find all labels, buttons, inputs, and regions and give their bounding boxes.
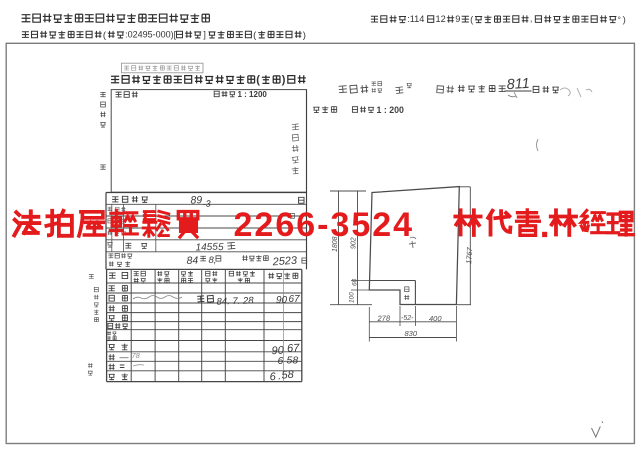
- svg-text:—: —: [120, 352, 129, 362]
- svg-text:): ): [303, 30, 306, 41]
- svg-text:1 : 200: 1 : 200: [377, 105, 404, 115]
- svg-text:°: °: [618, 16, 621, 25]
- svg-text:89: 89: [190, 194, 202, 207]
- svg-text:67: 67: [289, 294, 301, 305]
- svg-text:2266-3524: 2266-3524: [234, 206, 415, 244]
- svg-text:830: 830: [405, 329, 418, 338]
- svg-text:100: 100: [349, 292, 356, 303]
- svg-text:1767: 1767: [464, 246, 474, 264]
- svg-text:(: (: [103, 30, 107, 41]
- svg-text::02495-000)[: :02495-000)[: [125, 30, 177, 40]
- svg-text:): ): [623, 14, 626, 25]
- svg-text:6: 6: [278, 355, 284, 367]
- svg-text:278: 278: [376, 314, 391, 323]
- svg-text:1455: 1455: [195, 242, 218, 254]
- svg-text:12: 12: [436, 14, 446, 24]
- svg-text:-52-: -52-: [401, 315, 414, 322]
- svg-text:78: 78: [132, 351, 141, 360]
- svg-text:84: 84: [186, 255, 198, 267]
- svg-text:90: 90: [276, 295, 288, 306]
- svg-text:8,: 8,: [209, 255, 217, 266]
- svg-text:58: 58: [281, 369, 295, 382]
- svg-text::114: :114: [407, 14, 424, 24]
- svg-text:]: ]: [203, 30, 206, 40]
- svg-text:5: 5: [218, 242, 224, 253]
- svg-text:,: ,: [530, 14, 533, 24]
- svg-text:60: 60: [352, 278, 359, 286]
- svg-text:=: =: [120, 362, 125, 372]
- svg-text:2523: 2523: [271, 255, 298, 269]
- svg-text:9: 9: [455, 14, 460, 24]
- svg-text:84. 7. 28: 84. 7. 28: [216, 295, 254, 307]
- svg-text:1 : 1200: 1 : 1200: [238, 90, 268, 99]
- svg-text:(: (: [256, 74, 260, 86]
- svg-text:67: 67: [287, 342, 301, 355]
- svg-text:(: (: [253, 30, 257, 41]
- svg-text:811: 811: [506, 76, 530, 93]
- svg-text:(: (: [470, 14, 474, 25]
- svg-text:6: 6: [269, 371, 277, 383]
- svg-text:): ): [282, 74, 286, 86]
- svg-text:400: 400: [429, 314, 442, 323]
- svg-text:-3: -3: [202, 198, 211, 208]
- svg-text:58: 58: [287, 355, 299, 367]
